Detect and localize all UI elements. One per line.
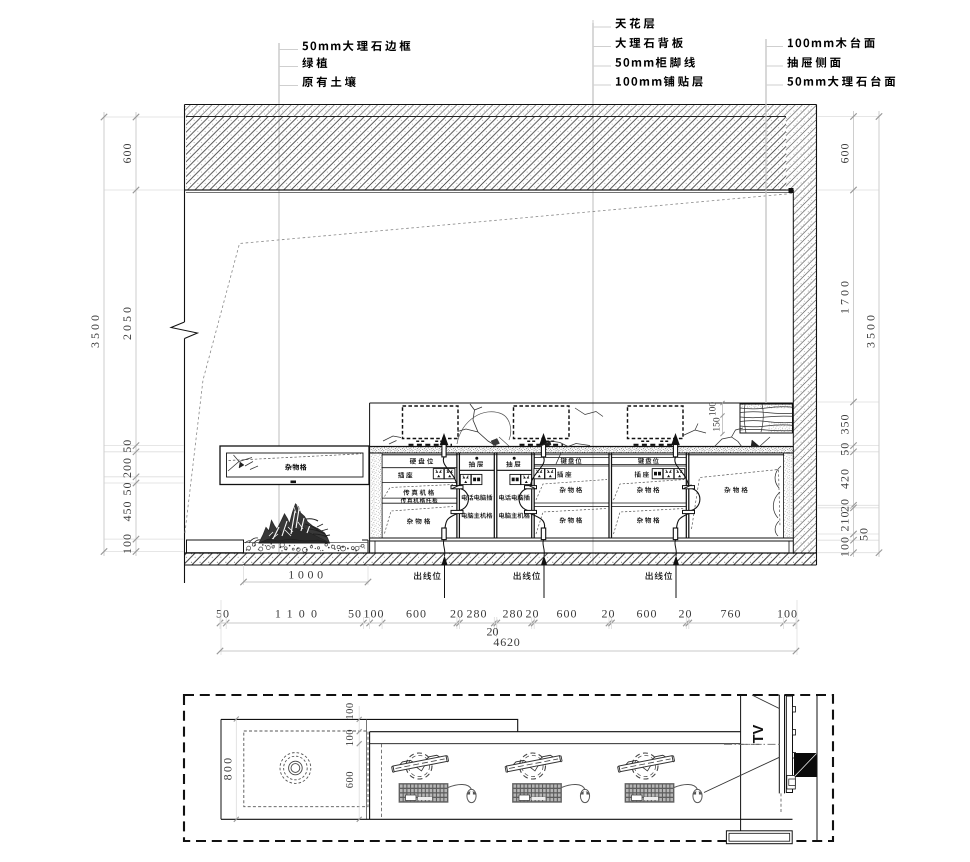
svg-text:280: 280 bbox=[503, 607, 524, 621]
svg-text:TV: TV bbox=[751, 724, 767, 743]
svg-text:20: 20 bbox=[526, 607, 540, 621]
svg-text:20: 20 bbox=[679, 607, 693, 621]
svg-text:600: 600 bbox=[120, 143, 134, 164]
svg-text:150: 150 bbox=[713, 417, 723, 432]
svg-text:50: 50 bbox=[857, 527, 871, 541]
svg-text:50: 50 bbox=[120, 482, 134, 496]
svg-text:600: 600 bbox=[557, 607, 578, 621]
svg-text:4620: 4620 bbox=[493, 635, 520, 649]
svg-text:1000: 1000 bbox=[288, 568, 326, 582]
svg-text:3500: 3500 bbox=[88, 312, 102, 348]
svg-text:200: 200 bbox=[120, 457, 134, 478]
svg-text:450: 450 bbox=[120, 501, 134, 522]
svg-text:3500: 3500 bbox=[864, 312, 878, 348]
svg-text:280: 280 bbox=[467, 607, 488, 621]
svg-text:1100: 1100 bbox=[275, 607, 323, 621]
svg-text:50: 50 bbox=[348, 607, 362, 621]
svg-text:210: 210 bbox=[838, 511, 852, 532]
svg-text:1700: 1700 bbox=[838, 278, 852, 314]
svg-text:20: 20 bbox=[450, 607, 464, 621]
svg-text:100: 100 bbox=[345, 702, 356, 719]
svg-text:100: 100 bbox=[838, 536, 852, 557]
svg-text:760: 760 bbox=[721, 607, 742, 621]
svg-text:100: 100 bbox=[364, 607, 385, 621]
svg-text:600: 600 bbox=[838, 143, 852, 164]
svg-text:50: 50 bbox=[120, 439, 134, 453]
svg-text:600: 600 bbox=[637, 607, 658, 621]
svg-text:350: 350 bbox=[838, 414, 852, 435]
svg-text:600: 600 bbox=[406, 607, 427, 621]
svg-text:2050: 2050 bbox=[120, 304, 134, 340]
svg-text:800: 800 bbox=[221, 756, 235, 781]
svg-text:20: 20 bbox=[838, 498, 852, 512]
svg-text:420: 420 bbox=[838, 468, 852, 489]
svg-text:100: 100 bbox=[777, 607, 798, 621]
svg-text:600: 600 bbox=[345, 771, 356, 788]
svg-text:50: 50 bbox=[838, 442, 852, 456]
svg-text:100: 100 bbox=[345, 729, 356, 746]
svg-text:50: 50 bbox=[216, 607, 230, 621]
svg-text:100: 100 bbox=[709, 402, 719, 417]
svg-text:100: 100 bbox=[120, 533, 134, 554]
svg-text:20: 20 bbox=[602, 607, 616, 621]
